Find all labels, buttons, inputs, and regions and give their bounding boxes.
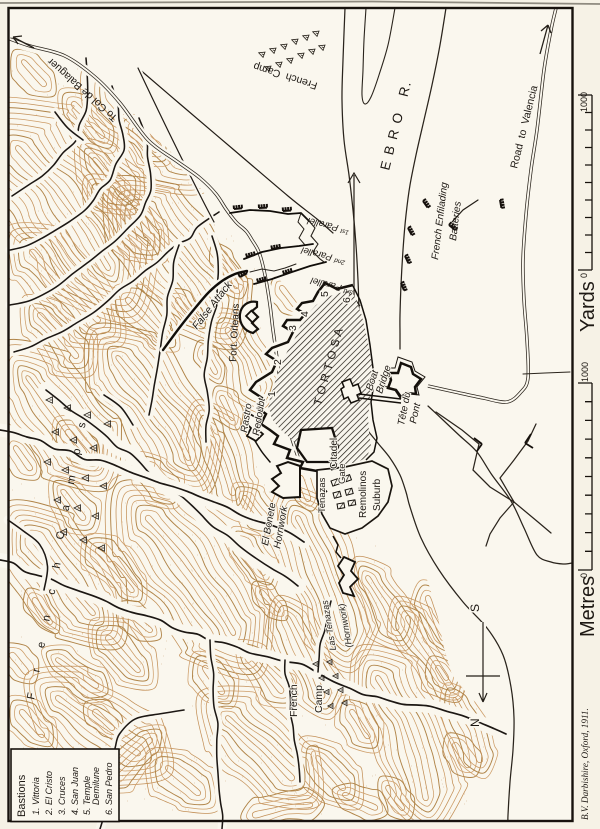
- svg-text:French: French: [288, 684, 300, 717]
- svg-text:1000: 1000: [579, 92, 589, 112]
- svg-text:Yards: Yards: [577, 281, 599, 332]
- svg-text:N: N: [468, 718, 482, 727]
- svg-text:4: 4: [299, 311, 311, 317]
- svg-text:Bastions: Bastions: [16, 774, 28, 817]
- svg-text:2: 2: [272, 359, 284, 365]
- svg-text:Metres: Metres: [577, 576, 599, 637]
- svg-text:3. Cruces: 3. Cruces: [57, 776, 67, 815]
- svg-text:5: 5: [319, 291, 331, 297]
- svg-text:6. San Pedro: 6. San Pedro: [104, 762, 114, 815]
- svg-text:3: 3: [287, 325, 299, 331]
- svg-text:Remolinos: Remolinos: [358, 471, 369, 518]
- svg-text:4. San Juan: 4. San Juan: [70, 767, 80, 815]
- svg-text:Demilune: Demilune: [91, 767, 101, 805]
- svg-text:1: 1: [266, 391, 278, 397]
- svg-text:Suburb: Suburb: [372, 478, 383, 511]
- svg-text:0: 0: [579, 273, 589, 278]
- svg-text:B.V. Darbishire, Oxford, 1911.: B.V. Darbishire, Oxford, 1911.: [580, 708, 590, 820]
- svg-text:1000: 1000: [580, 362, 590, 382]
- svg-text:Gate: Gate: [337, 463, 348, 484]
- svg-text:Camp: Camp: [313, 685, 325, 713]
- svg-text:S: S: [468, 604, 482, 612]
- svg-text:1. Vittoria: 1. Vittoria: [31, 777, 41, 815]
- svg-text:2. El Cristo: 2. El Cristo: [44, 771, 54, 816]
- svg-text:Tenazas: Tenazas: [317, 477, 328, 513]
- svg-text:6: 6: [341, 297, 353, 303]
